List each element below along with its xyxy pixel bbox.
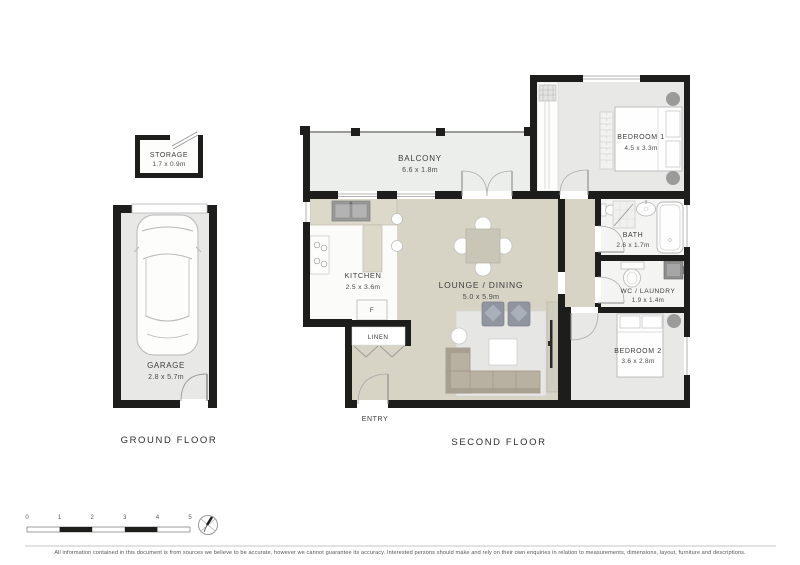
- ground-floor-plan: STORAGE 1.7 x 0.9m GARAGE 2.8 x 5.7m: [113, 132, 217, 446]
- washing-machine-icon: [664, 261, 686, 279]
- wardrobe-icon: [537, 82, 558, 191]
- garage-dims: 2.8 x 5.7m: [148, 374, 184, 381]
- shower-icon: [613, 201, 635, 228]
- balcony-dims: 6.6 x 1.8m: [402, 167, 438, 174]
- second-floor-plan: F: [300, 73, 690, 448]
- bedroom2-label: BEDROOM 2: [614, 348, 661, 355]
- side-table-icon: [451, 328, 467, 344]
- floorplan-drawing: STORAGE 1.7 x 0.9m GARAGE 2.8 x 5.7m: [0, 0, 800, 565]
- bath-label: BATH: [623, 232, 644, 239]
- bedroom1-rug: [600, 112, 613, 169]
- kitchen-sink-icon: [332, 201, 370, 221]
- scale-tick: 5: [188, 515, 192, 521]
- garage-door: [132, 204, 207, 213]
- cooktop-icon: [310, 236, 329, 274]
- stool-icon: [392, 214, 403, 225]
- kitchen-dims: 2.5 x 3.6m: [346, 284, 381, 291]
- disclaimer-text: All information contained in this docume…: [54, 550, 746, 556]
- wc-laundry-dims: 1.9 x 1.4m: [632, 297, 664, 304]
- storage-dims: 1.7 x 0.9m: [152, 161, 185, 168]
- stool-icon: [392, 241, 403, 252]
- scale-tick: 1: [58, 515, 62, 521]
- balcony-label: BALCONY: [398, 154, 442, 163]
- bed2-icon: [617, 314, 663, 377]
- lounge-dining-label: LOUNGE / DINING: [439, 280, 524, 290]
- garage-label: GARAGE: [147, 361, 185, 370]
- storage-label: STORAGE: [150, 152, 188, 159]
- storage-room: STORAGE 1.7 x 0.9m: [135, 132, 203, 178]
- entry-label: ENTRY: [362, 416, 389, 423]
- floorplan-page: STORAGE 1.7 x 0.9m GARAGE 2.8 x 5.7m: [0, 0, 800, 565]
- ottoman-icon: [667, 314, 681, 328]
- fridge-box: F: [357, 300, 387, 320]
- fridge-label: F: [370, 307, 374, 314]
- coffee-table-icon: [489, 339, 517, 365]
- compass-icon: [199, 516, 218, 535]
- bedroom1-label: BEDROOM 1: [617, 134, 664, 141]
- scale-tick: 3: [123, 515, 127, 521]
- scale-tick: 4: [156, 515, 160, 521]
- footer: All information contained in this docume…: [25, 546, 776, 556]
- armchair-icon: [508, 302, 530, 326]
- car-icon: [134, 215, 201, 355]
- entry-floor: [352, 345, 412, 402]
- bedroom1-dims: 4.5 x 3.3m: [624, 145, 657, 152]
- second-floor-label: SECOND FLOOR: [451, 437, 546, 448]
- ottoman-icon: [666, 92, 680, 106]
- ground-floor-label: GROUND FLOOR: [121, 435, 218, 446]
- scale-tick: 2: [91, 515, 95, 521]
- wc-laundry-label: WC / LAUNDRY: [620, 288, 675, 295]
- scale-tick: 0: [25, 515, 29, 521]
- bedroom2-dims: 3.6 x 2.8m: [621, 358, 654, 365]
- kitchen-label: KITCHEN: [344, 271, 381, 280]
- linen-label: LINEN: [368, 334, 389, 341]
- lounge-dining-dims: 5.0 x 5.9m: [463, 292, 500, 301]
- bath-dims: 2.6 x 1.7m: [616, 242, 649, 249]
- bathtub-icon: [657, 202, 683, 253]
- armchair-icon: [482, 302, 504, 326]
- scale-bar: 0 1 2 3 4 5: [25, 515, 192, 532]
- ottoman-icon: [666, 171, 680, 185]
- garage-room: GARAGE 2.8 x 5.7m: [113, 204, 217, 408]
- tv-icon: [550, 320, 553, 368]
